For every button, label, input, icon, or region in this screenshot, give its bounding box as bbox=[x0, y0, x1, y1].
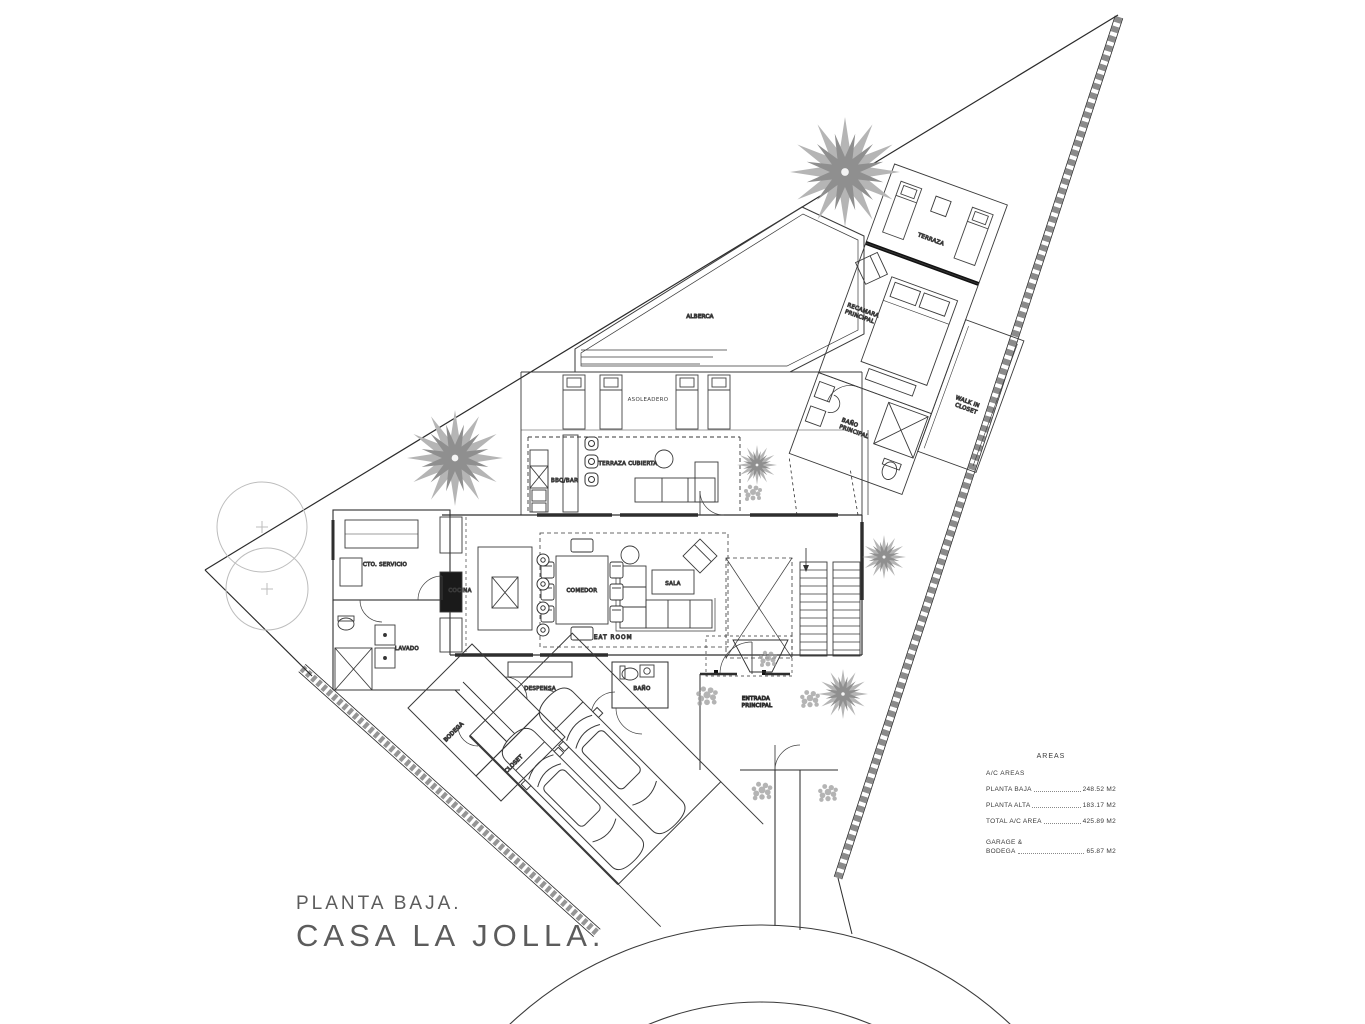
areas-row-planta-baja: PLANTA BAJA 248.52 M2 bbox=[986, 786, 1116, 793]
palm-tree-icon bbox=[737, 445, 777, 485]
bush-icon bbox=[744, 485, 762, 501]
bush-icon bbox=[818, 784, 838, 802]
bar-stools bbox=[585, 437, 598, 486]
areas-title: AREAS bbox=[986, 753, 1116, 760]
asoleadero-loungers: ASOLEADERO bbox=[563, 375, 730, 429]
garage-label-line2: BODEGA bbox=[986, 848, 1016, 855]
label-entrada: ENTRADA PRINCIPAL bbox=[742, 696, 773, 709]
pool-alberca: ALBERCA bbox=[575, 207, 864, 372]
dotted-leader bbox=[1032, 807, 1080, 808]
label-asoleadero: ASOLEADERO bbox=[628, 397, 669, 403]
floor-plan-sheet: ALBERCA ASOLEADERO TERRAZA CUBIERTA BBQ/… bbox=[0, 0, 1365, 1024]
dotted-leader bbox=[1034, 791, 1081, 792]
areas-row-total: TOTAL A/C AREA 425.89 M2 bbox=[986, 818, 1116, 825]
floor-plan-canvas: ALBERCA ASOLEADERO TERRAZA CUBIERTA BBQ/… bbox=[0, 0, 1365, 1024]
row-label: PLANTA ALTA bbox=[986, 802, 1030, 809]
palm-tree-icon bbox=[790, 117, 900, 227]
palm-tree-icon bbox=[862, 535, 906, 579]
label-cocina: COCINA bbox=[448, 588, 471, 594]
title-block: PLANTA BAJA. CASA LA JOLLA. bbox=[296, 893, 606, 954]
bush-icon bbox=[759, 651, 777, 667]
palm-tree-icon bbox=[818, 669, 868, 719]
row-value: 65.87 M2 bbox=[1086, 848, 1116, 855]
terraza-cubierta: TERRAZA CUBIERTA BBQ/BAR bbox=[528, 435, 740, 512]
great-room: COCINA COMEDOR SALA GREAT ROOM bbox=[440, 517, 860, 658]
areas-row-garage: GARAGE & BODEGA 65.87 M2 bbox=[986, 839, 1116, 855]
row-value: 425.89 M2 bbox=[1083, 818, 1116, 825]
plan-subtitle: PLANTA BAJA. bbox=[296, 893, 606, 915]
label-bano: BAÑO bbox=[633, 685, 651, 692]
label-sala: SALA bbox=[665, 581, 681, 587]
label-lavado: LAVADO bbox=[395, 646, 420, 652]
bush-icon bbox=[752, 782, 773, 801]
dotted-leader bbox=[1018, 853, 1085, 854]
label-terraza-cubierta: TERRAZA CUBIERTA bbox=[598, 461, 658, 467]
dotted-leader bbox=[1044, 823, 1081, 824]
plan-title: CASA LA JOLLA. bbox=[296, 918, 606, 954]
bush-icon bbox=[800, 690, 820, 708]
label-bano-principal: BAÑO PRINCIPAL bbox=[838, 417, 872, 441]
label-recamara: RECAMARA PRINCIPAL bbox=[844, 303, 882, 327]
label-cto-servicio: CTO. SERVICIO bbox=[363, 562, 408, 568]
bush-icon bbox=[696, 686, 718, 705]
areas-row-planta-alta: PLANTA ALTA 183.17 M2 bbox=[986, 802, 1116, 809]
label-walk-in-closet: WALK IN CLOSET bbox=[952, 395, 982, 417]
row-value: 248.52 M2 bbox=[1083, 786, 1116, 793]
garage-label-line1: GARAGE & bbox=[986, 839, 1116, 846]
label-comedor: COMEDOR bbox=[567, 588, 598, 594]
master-wing: TERRAZA RECAMARA PRINCIPAL WALK IN CLOSE… bbox=[786, 163, 1065, 516]
row-value: 183.17 M2 bbox=[1083, 802, 1116, 809]
palm-tree-icon bbox=[407, 410, 503, 506]
areas-subtitle: A/C AREAS bbox=[986, 770, 1116, 777]
areas-table: AREAS A/C AREAS PLANTA BAJA 248.52 M2 PL… bbox=[986, 753, 1116, 855]
label-alberca: ALBERCA bbox=[686, 314, 713, 320]
label-terraza: TERRAZA bbox=[916, 232, 945, 247]
row-label: PLANTA BAJA bbox=[986, 786, 1032, 793]
canopy-tree-icon bbox=[217, 482, 308, 630]
label-bodega: BODEGA bbox=[443, 721, 465, 743]
row-label: TOTAL A/C AREA bbox=[986, 818, 1042, 825]
label-bbq-bar: BBQ/BAR bbox=[551, 478, 578, 484]
